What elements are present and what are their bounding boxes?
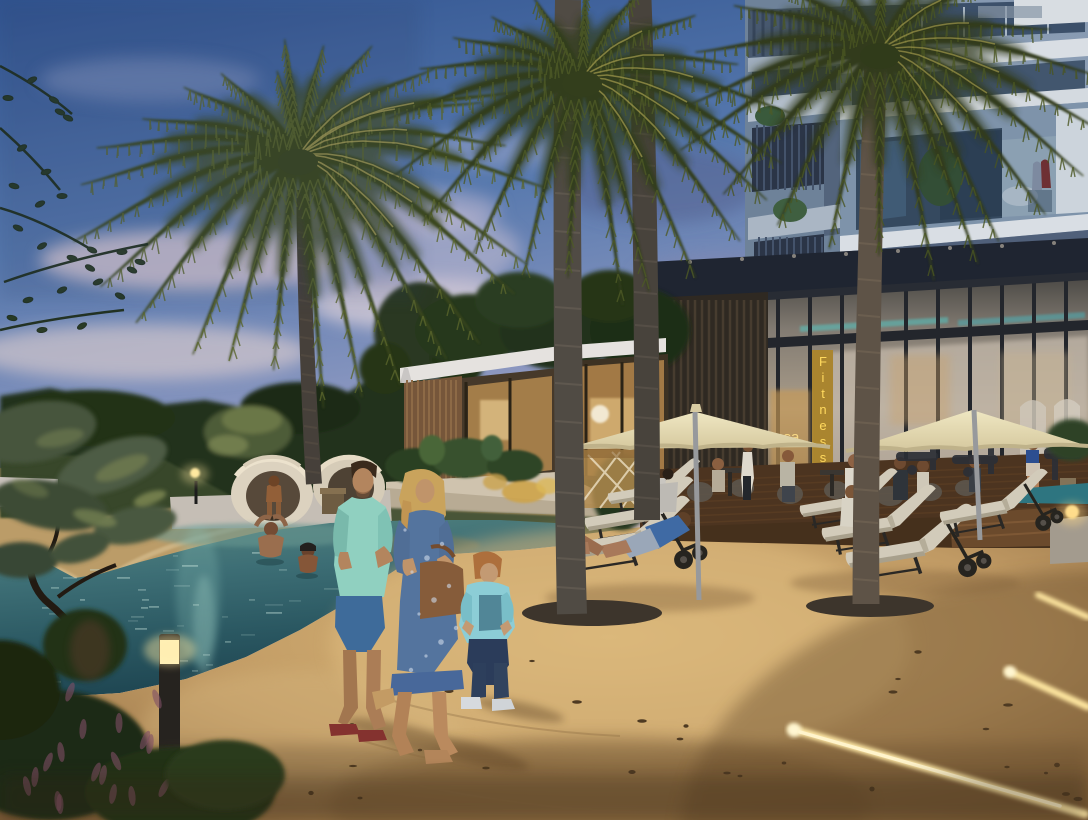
svg-text:t: t — [821, 386, 825, 401]
svg-text:F: F — [819, 354, 827, 369]
svg-text:e: e — [819, 418, 826, 433]
svg-text:n: n — [819, 402, 826, 417]
svg-text:i: i — [822, 370, 825, 385]
